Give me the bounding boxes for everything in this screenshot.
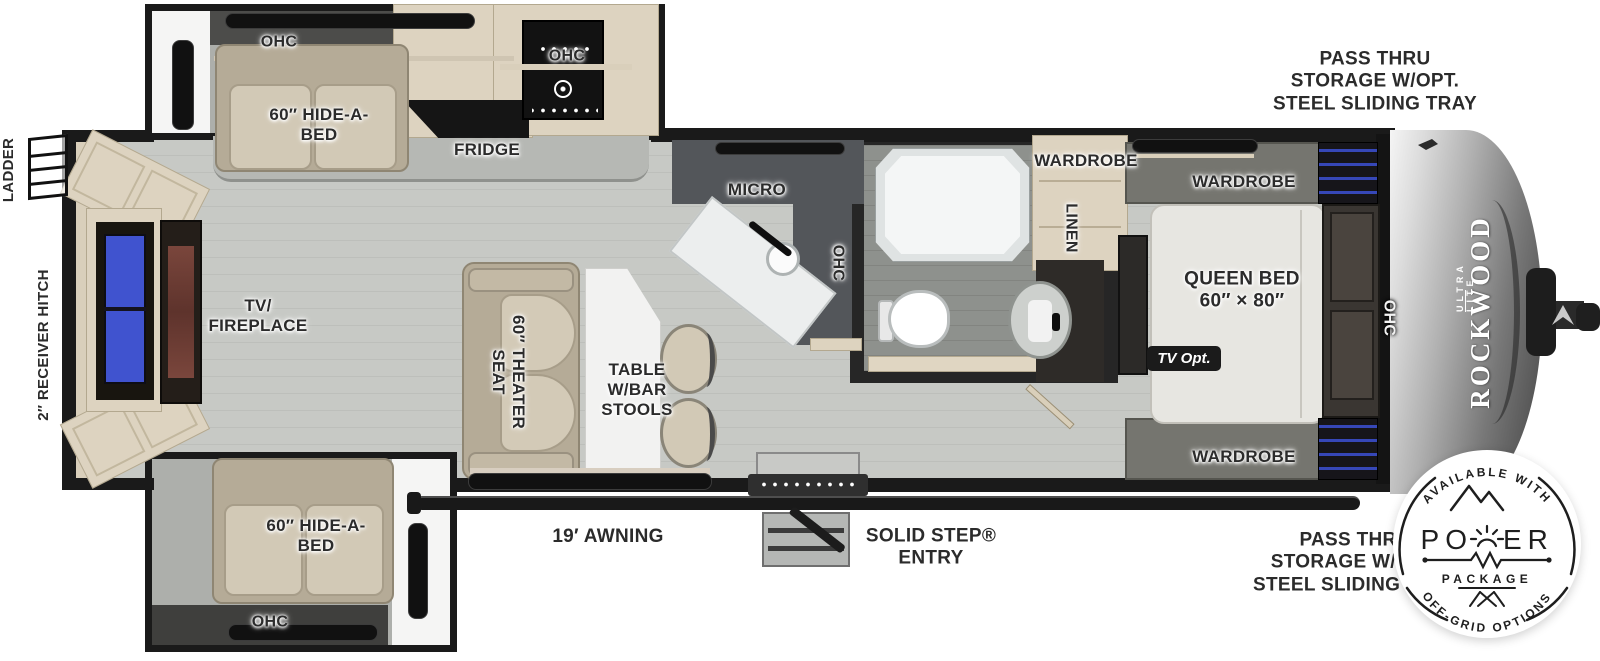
solar-panel-icon [1459, 588, 1515, 606]
sun-icon [1471, 526, 1503, 546]
tv-opt-label: TV Opt. [1157, 350, 1210, 367]
micro-label: MICRO [728, 180, 786, 200]
closet-shelf-line [1039, 226, 1121, 228]
badge-bottom-text: OFF-GRID OPTIONS [1419, 589, 1554, 635]
stool-back [697, 407, 715, 461]
ladder-label: LADDER [0, 138, 18, 202]
rv-floorplan: ROCKWOOD ULTRA LITE LADDER 2″ RECEIVER H… [0, 0, 1600, 661]
closet-shelf-line [1039, 180, 1121, 182]
badge-power-suffix: ER [1503, 524, 1554, 555]
badge-package-text: PACKAGE [1442, 572, 1533, 586]
vanity-sink-basin [1028, 300, 1052, 342]
badge-top-text: AVAILABLE WITH [1419, 465, 1554, 507]
linen-label: LINEN [1061, 203, 1080, 253]
badge-power-prefix: PO [1421, 524, 1473, 555]
window [172, 40, 194, 130]
headboard-dresser [1330, 310, 1374, 400]
queen-bed-label: QUEEN BED 60″ × 80″ [1184, 269, 1300, 314]
receiver-hitch-label: 2″ RECEIVER HITCH [35, 269, 53, 420]
awning-label: 19′ AWNING [552, 526, 663, 548]
ohc-label-bedroom: OHC [1379, 300, 1398, 336]
power-package-badge: AVAILABLE WITH OFF-GRID OPTIONS PO ER PA… [1393, 450, 1581, 638]
table-label: TABLE W/BAR STOOLS [601, 360, 672, 420]
nightstand-led-cabinet [1318, 142, 1378, 204]
ladder-icon [28, 134, 68, 200]
power-package-badge-art: AVAILABLE WITH OFF-GRID OPTIONS PO ER PA… [1393, 450, 1581, 638]
tv-opt-badge: TV Opt. [1147, 346, 1221, 371]
fridge-label: FRIDGE [454, 140, 520, 160]
ohc-label-kitchen: OHC [828, 245, 847, 281]
window [228, 624, 378, 641]
resistor-end-dot [1422, 557, 1427, 562]
stove-knobs [532, 106, 598, 115]
wardrobe-label-top: WARDROBE [1192, 172, 1295, 192]
bed-head-fold [1300, 210, 1302, 418]
entry-threshold-treads [760, 480, 856, 489]
svg-text:AVAILABLE WITH: AVAILABLE WITH [1419, 465, 1554, 507]
shower-pan [885, 156, 1020, 254]
tv-screen-divider [104, 307, 146, 311]
solid-step-label: SOLID STEP® ENTRY [866, 526, 996, 571]
ohc-label-top-slide: OHC [261, 34, 297, 53]
headboard-dresser [1330, 212, 1374, 302]
hide-a-bed-label-bottom: 60″ HIDE-A- BED [266, 516, 365, 556]
stool-back [697, 333, 715, 387]
window [1132, 139, 1258, 153]
brand-rockwood: ROCKWOOD ULTRA LITE [1405, 140, 1525, 484]
awning-hook [407, 492, 421, 514]
bath-floor-sill [868, 356, 1060, 372]
window [225, 13, 475, 29]
toilet-bowl [888, 290, 950, 348]
wardrobe-label-bottom: WARDROBE [1192, 447, 1295, 467]
theater-armrest [468, 268, 574, 292]
hitch-coupler [1576, 303, 1600, 331]
ladder-rung [31, 151, 65, 158]
resistor-end-dot [1546, 557, 1551, 562]
kitchen-counter-base [810, 338, 862, 351]
window [715, 142, 845, 155]
ohc-label-stove: OHC [549, 48, 585, 67]
ladder-rung [31, 179, 65, 186]
nightstand-led-cabinet [1318, 418, 1378, 480]
step-tread [768, 528, 844, 533]
window [468, 473, 712, 490]
ladder-rung [31, 165, 65, 172]
fireplace-glow [168, 246, 194, 378]
window [408, 523, 428, 619]
ohc-label-bottom-slide: OHC [252, 614, 288, 633]
theater-seat-label: 60″ THEATER SEAT [488, 315, 528, 429]
window-sill [1136, 154, 1254, 158]
stove [522, 20, 604, 120]
svg-text:OFF-GRID OPTIONS: OFF-GRID OPTIONS [1419, 589, 1554, 635]
tongue-jack [1526, 268, 1556, 356]
pass-thru-label-top: PASS THRU STORAGE W/OPT. STEEL SLIDING T… [1273, 48, 1477, 115]
hide-a-bed-label-top: 60″ HIDE-A- BED [269, 105, 368, 145]
bedroom-tv-wall [1118, 235, 1148, 375]
resistor-line [1427, 553, 1547, 567]
wardrobe-label-linen: WARDROBE [1034, 151, 1137, 171]
vanity-faucet [1052, 313, 1060, 331]
stove-burner [554, 80, 572, 98]
awning-bar [415, 496, 1360, 510]
brand-rule-right [1465, 290, 1466, 312]
mountains-icon [1451, 486, 1503, 510]
tv-fireplace-label: TV/ FIREPLACE [208, 296, 307, 336]
